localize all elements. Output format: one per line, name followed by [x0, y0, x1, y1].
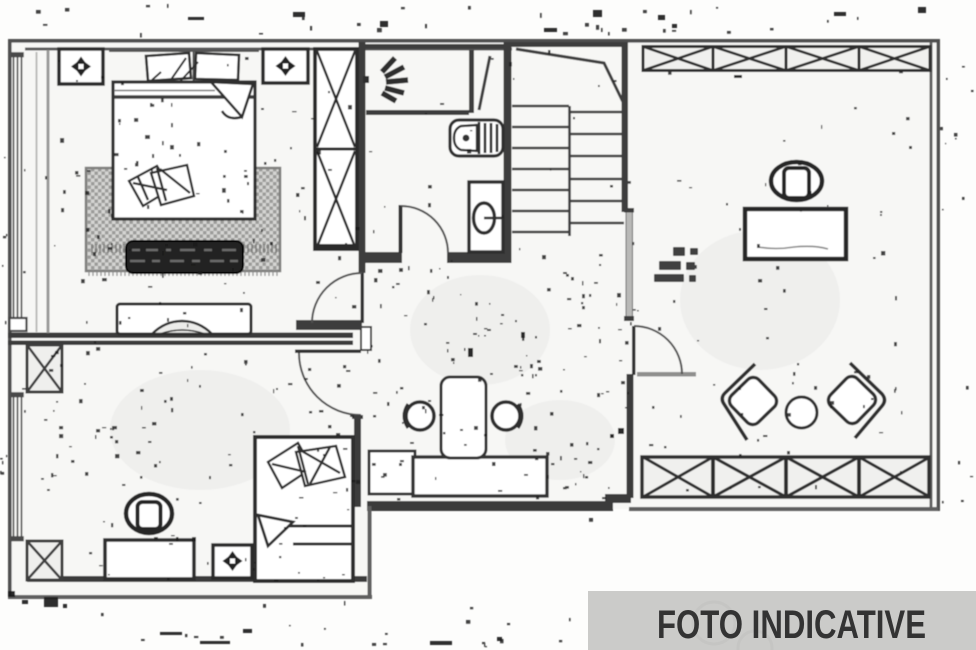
svg-text:FOTO INDICATIVE: FOTO INDICATIVE	[657, 603, 926, 647]
